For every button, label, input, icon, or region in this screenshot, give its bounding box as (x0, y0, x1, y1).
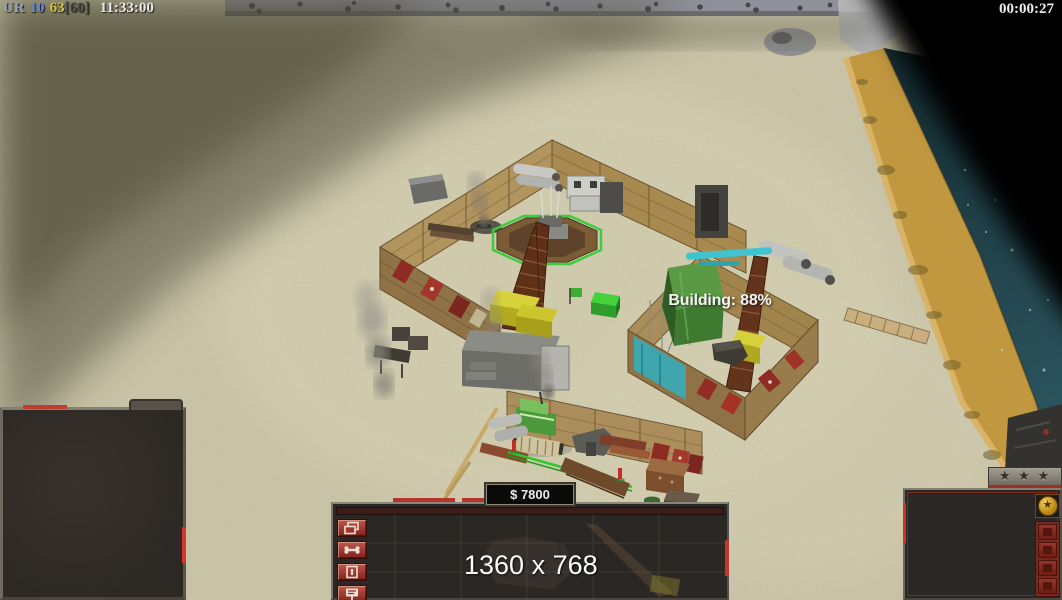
rank-emblem-button[interactable]: ★ (1035, 494, 1060, 518)
status-segment: UR (3, 0, 25, 16)
minimap-accent (182, 527, 186, 563)
status-segment: 63 (50, 0, 65, 16)
money-display: $ 7800 (486, 484, 574, 505)
command-button-column (337, 519, 367, 600)
status-bar: UR1063[60]11:33:00 (3, 0, 159, 17)
minimap-accent (23, 405, 67, 409)
minimap-panel[interactable] (0, 407, 186, 600)
pause-box-button[interactable] (337, 563, 367, 581)
rank-panel-accent (903, 503, 906, 543)
stacked-windows-icon (343, 521, 361, 535)
game-screen: UR1063[60]11:33:00 00:00:27 Building: 88… (0, 0, 1062, 600)
rank-panel: ★ (903, 488, 1062, 600)
signpost-icon (343, 587, 361, 600)
command-bar-strip (336, 507, 724, 515)
status-segment: [60] (65, 0, 90, 16)
ability-slot-icon[interactable] (1038, 560, 1057, 576)
ability-slot-icon[interactable] (1038, 524, 1057, 540)
minimap-tab[interactable] (129, 399, 183, 410)
clock-readout: 11:33:00 (100, 0, 154, 16)
command-bar-accent (725, 540, 729, 576)
status-segment: 10 (30, 0, 45, 16)
pause-box-icon (343, 565, 361, 579)
bone-button[interactable] (337, 541, 367, 559)
bone-icon (343, 543, 361, 557)
ability-slot-column (1035, 521, 1060, 597)
resolution-overlay: 1360 x 768 (464, 550, 664, 581)
gold-star-medal-icon: ★ (1038, 496, 1058, 516)
game-timer: 00:00:27 (999, 1, 1054, 18)
stacked-windows-button[interactable] (337, 519, 367, 537)
signpost-button[interactable] (337, 585, 367, 600)
building-progress-label: Building: 88% (640, 292, 800, 310)
ability-slot-icon[interactable] (1038, 542, 1057, 558)
command-bar-accent (393, 498, 455, 502)
ability-slot-icon[interactable] (1038, 578, 1057, 594)
rank-stars-tab[interactable]: ★ ★ ★ (988, 467, 1062, 488)
